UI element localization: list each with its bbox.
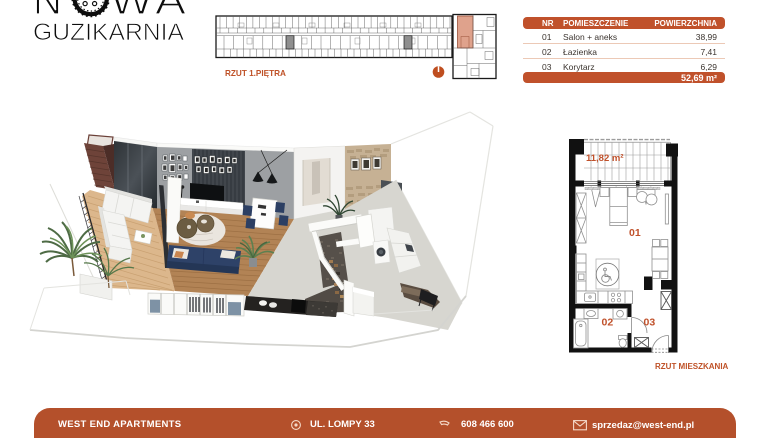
svg-text:GUZIKARNIA: GUZIKARNIA xyxy=(33,19,184,46)
svg-text:03: 03 xyxy=(644,317,656,329)
svg-text:11,82 m²: 11,82 m² xyxy=(586,153,624,164)
svg-text:RZUT 1.PIĘTRA: RZUT 1.PIĘTRA xyxy=(225,69,286,78)
svg-text:01: 01 xyxy=(629,227,641,239)
svg-text:02: 02 xyxy=(602,317,614,329)
